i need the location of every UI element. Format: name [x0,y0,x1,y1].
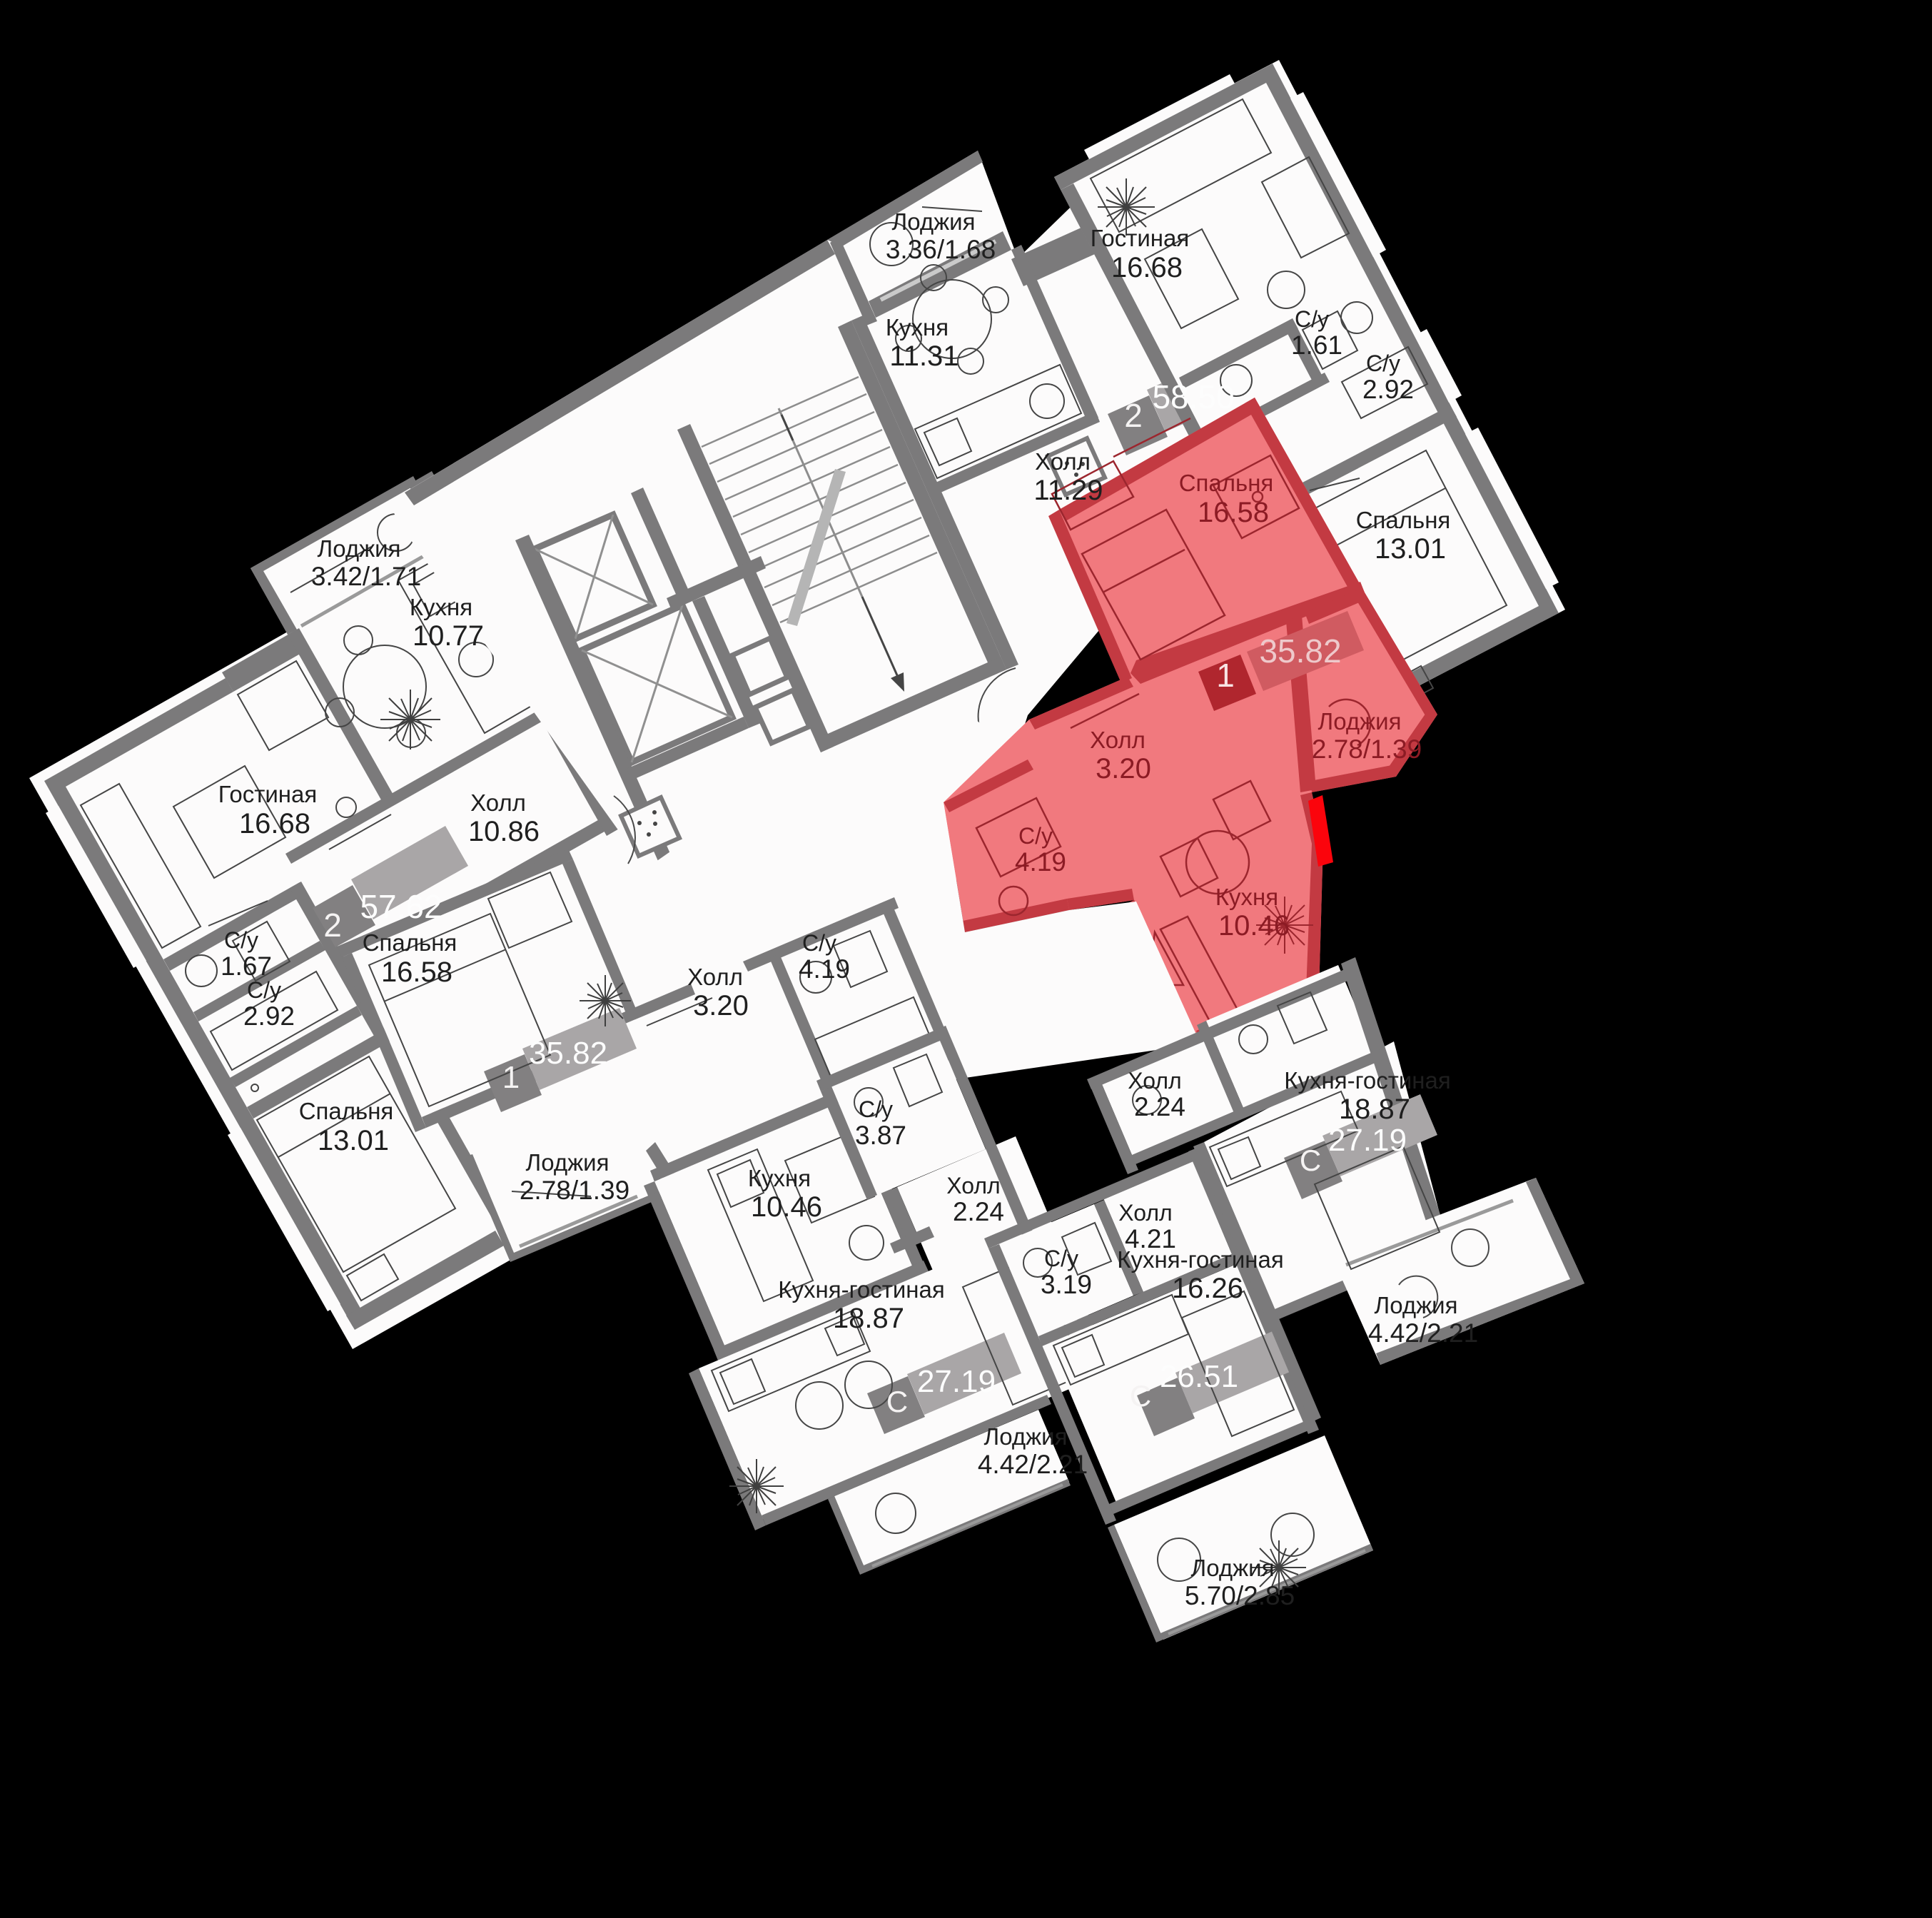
svg-text:Гостиная: Гостиная [1091,225,1190,251]
svg-text:С: С [1130,1379,1151,1413]
svg-text:16.68: 16.68 [1111,252,1183,283]
svg-text:Лоджия: Лоджия [1318,708,1402,735]
svg-text:С/у: С/у [1018,823,1053,849]
svg-text:27.19: 27.19 [1328,1123,1407,1158]
svg-text:10.77: 10.77 [413,620,484,652]
svg-text:16.26: 16.26 [1172,1273,1243,1304]
svg-text:10.46: 10.46 [1218,910,1290,942]
svg-text:Холл: Холл [1090,727,1145,753]
svg-text:35.82: 35.82 [529,1036,607,1071]
svg-text:18.87: 18.87 [1339,1094,1410,1125]
svg-text:26.51: 26.51 [1160,1359,1238,1394]
svg-text:С/у: С/у [224,927,258,953]
svg-text:16.58: 16.58 [1198,497,1269,528]
svg-text:Кухня: Кухня [886,314,949,340]
svg-text:Кухня-гостиная: Кухня-гостиная [1284,1067,1450,1094]
svg-text:4.19: 4.19 [1015,847,1066,877]
svg-text:Гостиная: Гостиная [218,781,318,807]
svg-text:С: С [1300,1144,1321,1177]
svg-text:11.31: 11.31 [889,340,959,372]
svg-text:1: 1 [502,1060,520,1095]
svg-text:27.19: 27.19 [917,1364,996,1399]
svg-text:Лоджия: Лоджия [318,535,401,562]
svg-text:16.58: 16.58 [381,957,452,988]
svg-text:С/у: С/у [1295,306,1329,332]
svg-text:Лоджия: Лоджия [892,208,976,235]
svg-text:4.42/2.21: 4.42/2.21 [1368,1318,1478,1348]
svg-text:Холл: Холл [946,1173,1000,1198]
svg-text:2.24: 2.24 [953,1197,1004,1226]
svg-text:3.87: 3.87 [855,1121,906,1150]
svg-text:3.42/1.71: 3.42/1.71 [311,562,421,591]
svg-text:1.61: 1.61 [1291,330,1342,360]
svg-text:Холл: Холл [1118,1200,1172,1226]
svg-text:1.67: 1.67 [221,952,272,981]
svg-text:Лоджия: Лоджия [1375,1292,1458,1318]
svg-text:С/у: С/у [802,930,836,956]
svg-text:2.92: 2.92 [243,1001,295,1031]
svg-text:57.62: 57.62 [360,888,442,925]
svg-text:2.78/1.39: 2.78/1.39 [520,1176,629,1205]
svg-text:Спальня: Спальня [363,929,457,956]
svg-text:10.86: 10.86 [468,816,540,847]
svg-text:Холл: Холл [1035,448,1091,475]
svg-text:1: 1 [1216,657,1235,694]
svg-text:Холл: Холл [470,789,526,816]
svg-text:5.70/2.85: 5.70/2.85 [1185,1581,1295,1610]
svg-text:Спальня: Спальня [299,1098,394,1124]
svg-text:С/у: С/у [1044,1246,1078,1271]
svg-text:18.87: 18.87 [833,1303,904,1334]
svg-text:Кухня: Кухня [748,1165,811,1191]
svg-text:10.46: 10.46 [751,1191,822,1223]
svg-text:С: С [886,1385,908,1418]
svg-text:С/у: С/у [1366,350,1400,376]
svg-text:Спальня: Спальня [1356,507,1451,533]
svg-text:58.50: 58.50 [1152,378,1234,415]
svg-text:2: 2 [323,907,342,944]
svg-text:Холл: Холл [687,964,743,990]
svg-text:С/у: С/у [247,977,281,1003]
svg-text:3.20: 3.20 [693,990,749,1021]
svg-text:3.20: 3.20 [1096,753,1151,784]
svg-text:11.29: 11.29 [1033,475,1103,506]
svg-text:13.01: 13.01 [1375,533,1446,565]
svg-text:Лоджия: Лоджия [1191,1555,1275,1581]
svg-text:Кухня: Кухня [1215,884,1278,910]
svg-text:Кухня-гостиная: Кухня-гостиная [778,1276,944,1303]
svg-text:2.92: 2.92 [1362,375,1414,404]
svg-text:3.19: 3.19 [1041,1270,1092,1299]
svg-text:4.19: 4.19 [799,954,850,984]
svg-text:2.78/1.39: 2.78/1.39 [1312,735,1422,764]
svg-text:35.82: 35.82 [1259,632,1341,670]
svg-text:13.01: 13.01 [318,1125,389,1156]
svg-text:16.68: 16.68 [239,808,310,839]
svg-text:Кухня-гостиная: Кухня-гостиная [1117,1246,1283,1273]
svg-text:2.24: 2.24 [1134,1092,1185,1121]
svg-text:Спальня: Спальня [1179,470,1274,496]
svg-text:3.36/1.68: 3.36/1.68 [886,235,996,264]
svg-text:4.42/2.21: 4.42/2.21 [978,1450,1088,1479]
svg-text:Лоджия: Лоджия [984,1423,1068,1450]
svg-text:Холл: Холл [1128,1068,1181,1094]
svg-text:2: 2 [1124,397,1143,434]
svg-text:Кухня: Кухня [410,594,472,620]
svg-text:С/у: С/у [859,1096,893,1122]
svg-text:Лоджия: Лоджия [526,1149,610,1176]
